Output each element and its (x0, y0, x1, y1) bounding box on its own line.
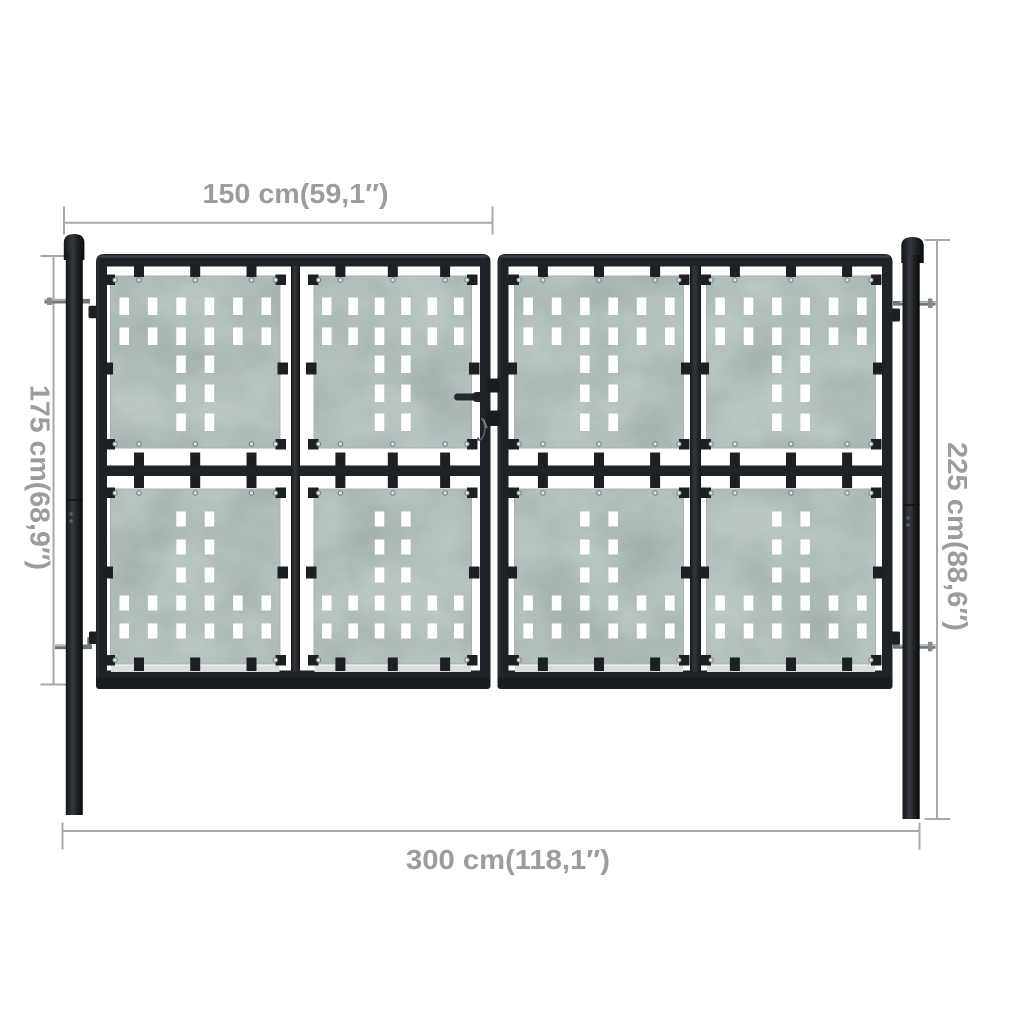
svg-text:150 cm(59,1″): 150 cm(59,1″) (203, 178, 389, 209)
svg-text:300 cm(118,1″): 300 cm(118,1″) (406, 844, 610, 875)
svg-text:225 cm(88,6″): 225 cm(88,6″) (942, 442, 973, 631)
svg-text:175 cm(68,9″): 175 cm(68,9″) (25, 385, 56, 570)
